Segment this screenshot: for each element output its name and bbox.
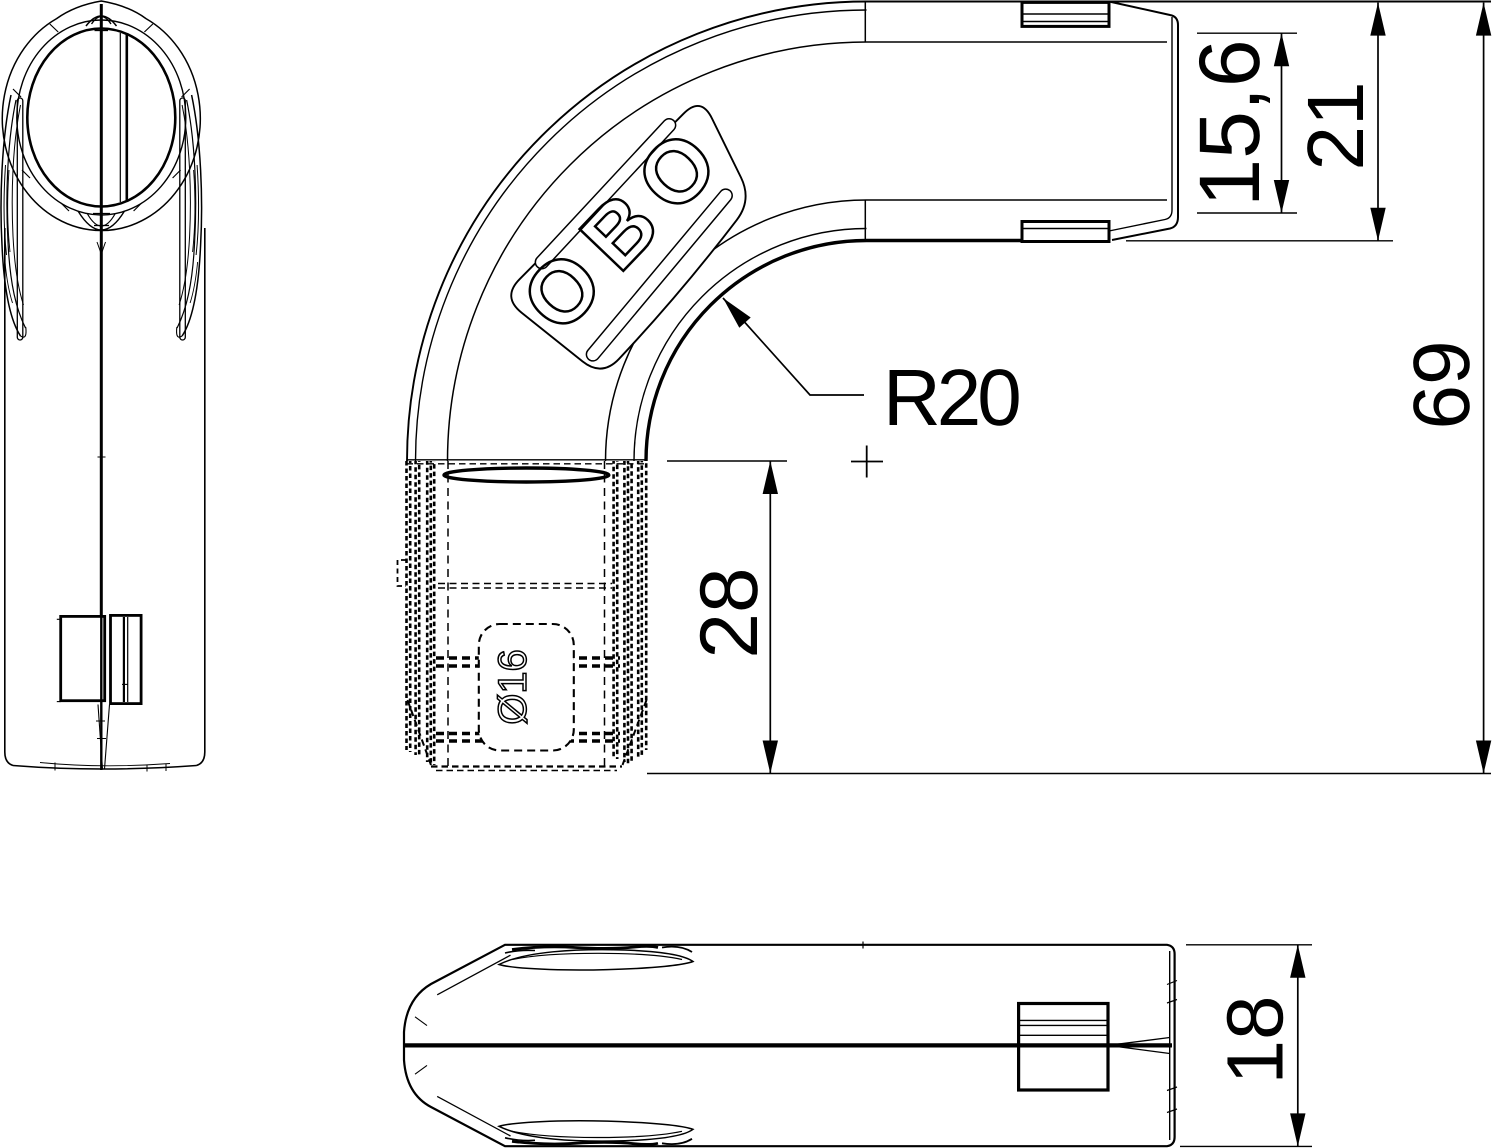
svg-text:Ø16: Ø16 (491, 649, 535, 725)
svg-text:69: 69 (1397, 341, 1486, 430)
svg-text:R20: R20 (883, 353, 1019, 442)
svg-text:21: 21 (1291, 82, 1380, 171)
svg-text:18: 18 (1211, 996, 1300, 1085)
svg-text:28: 28 (684, 567, 775, 658)
svg-text:15,6: 15,6 (1182, 39, 1278, 206)
